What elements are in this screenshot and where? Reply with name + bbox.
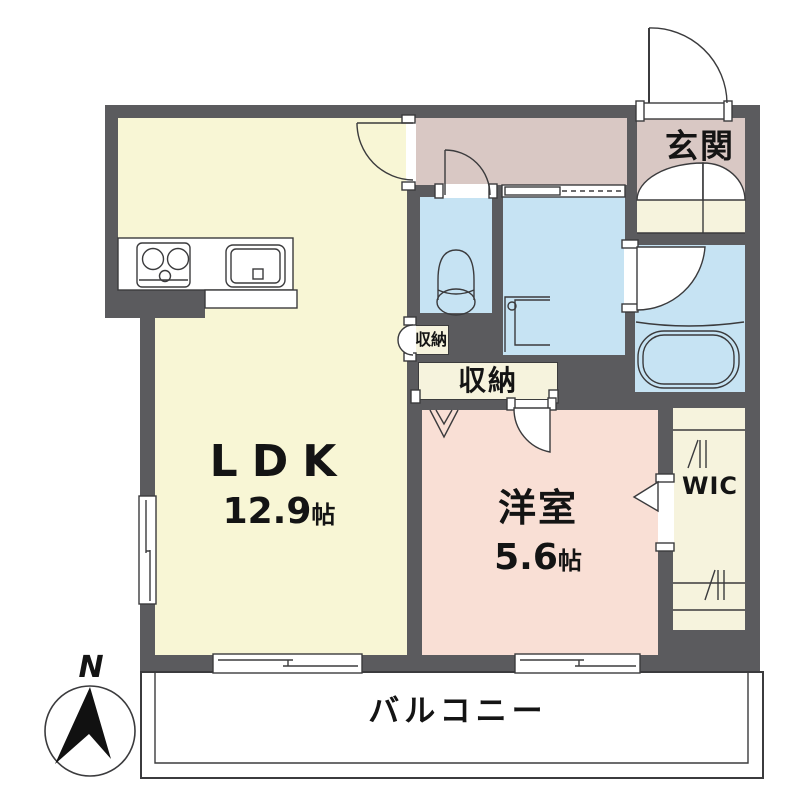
ldk-door (357, 115, 416, 190)
entrance-label: 玄関 (665, 130, 735, 163)
compass-north-label: N (78, 653, 103, 683)
wic-opening (634, 474, 674, 551)
toilet-door (435, 150, 497, 198)
window-ldk-bottom (213, 654, 362, 673)
storage-small-door (398, 317, 416, 361)
window-ldk-left (139, 496, 156, 604)
western-room-size-label: 5.6帖 (494, 540, 582, 576)
bathtub-icon (636, 322, 744, 388)
window-western-bottom (515, 654, 640, 673)
washroom-sliding-door (502, 185, 625, 197)
compass-icon (45, 686, 135, 776)
balcony-label: バルコニー (368, 697, 547, 728)
floor-plan: LDK 12.9帖 洋室 5.6帖 玄関 収納 収納 WIC バルコニー N (0, 0, 800, 800)
western-room-label: 洋室 (498, 489, 578, 527)
ldk-size-label: 12.9帖 (223, 494, 336, 530)
storage-small-label: 収納 (415, 332, 447, 348)
wic-shelves (673, 430, 745, 610)
plan-linework (0, 0, 800, 800)
toilet-icon (437, 250, 475, 315)
ldk-label: LDK (210, 440, 351, 484)
kitchen-counter (118, 238, 297, 308)
shoe-cabinet-doors (637, 163, 745, 233)
bathroom-door (622, 240, 705, 312)
wic-label: WIC (682, 474, 738, 498)
storage-large-label: 収納 (458, 367, 518, 395)
entrance-door (636, 28, 732, 121)
washbasin-icon (505, 297, 550, 352)
western-room-door (507, 398, 556, 452)
